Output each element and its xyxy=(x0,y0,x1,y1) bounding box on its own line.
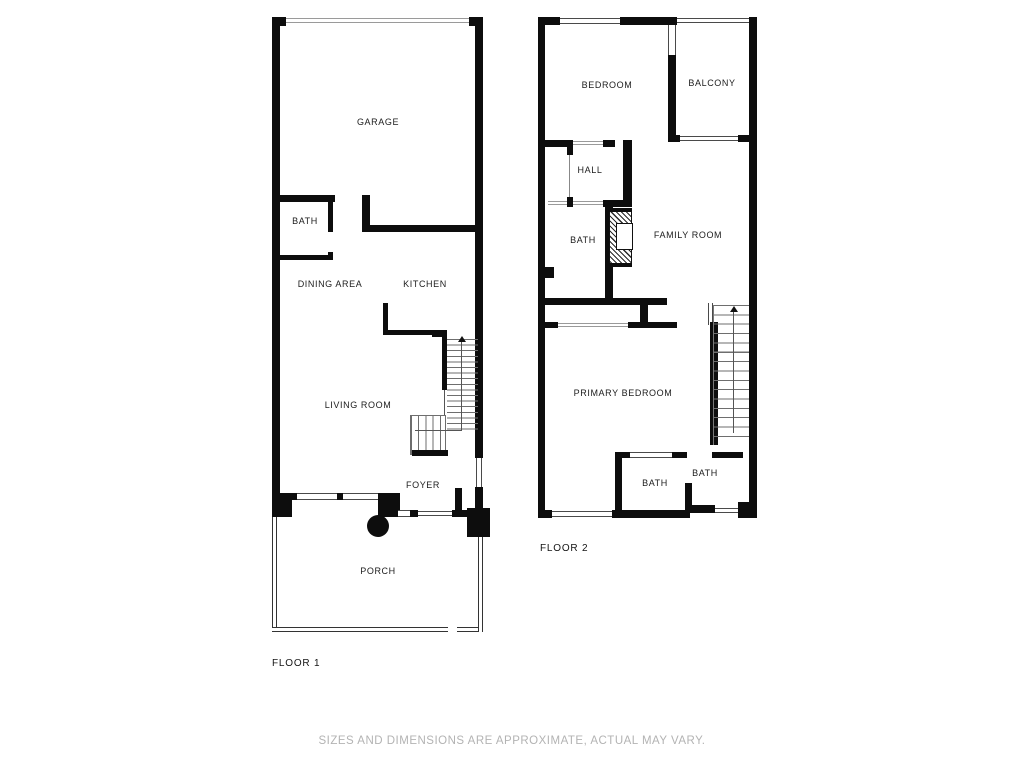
wall xyxy=(738,135,749,142)
wall xyxy=(672,452,687,458)
wall xyxy=(623,140,632,207)
wall xyxy=(668,135,680,142)
room-label-balcony: BALCONY xyxy=(688,78,735,88)
wall xyxy=(538,17,545,518)
wall xyxy=(620,17,677,25)
room-label-bedroom: BEDROOM xyxy=(582,80,633,90)
wall xyxy=(609,263,632,267)
door-opening xyxy=(568,141,603,145)
wall xyxy=(538,510,552,518)
closet-door-line xyxy=(569,155,570,197)
wall xyxy=(612,510,690,518)
closet-front xyxy=(548,201,567,205)
sliding-door xyxy=(680,136,738,141)
wall xyxy=(538,17,560,25)
room-label-hall: HALL xyxy=(578,165,603,175)
wall xyxy=(609,208,632,212)
window xyxy=(715,508,738,513)
wall xyxy=(545,140,568,147)
stair-up-arrow-icon xyxy=(730,306,738,312)
wall xyxy=(738,502,757,518)
wall xyxy=(712,452,743,458)
door-opening xyxy=(630,452,672,458)
room-label-bath-right: BATH xyxy=(692,468,718,478)
room-label-bath: BATH xyxy=(570,235,596,245)
window xyxy=(560,18,620,24)
window xyxy=(668,25,676,55)
wall xyxy=(545,267,554,278)
room-label-primary-bedroom: PRIMARY BEDROOM xyxy=(574,388,673,398)
room-label-family-room: FAMILY ROOM xyxy=(654,230,722,240)
floor2-plan: BEDROOM BALCONY HALL BATH FAMILY ROOM PR… xyxy=(0,0,1024,768)
stair-walkline xyxy=(733,311,734,433)
wall xyxy=(668,55,676,138)
staircase-floor2 xyxy=(713,305,749,445)
wall xyxy=(543,298,667,305)
room-label-bath-left: BATH xyxy=(642,478,668,488)
window xyxy=(552,511,612,517)
door-opening xyxy=(573,201,603,205)
balcony-railing xyxy=(677,18,749,23)
firebox xyxy=(616,223,633,250)
wall xyxy=(749,17,757,518)
disclaimer-text: SIZES AND DIMENSIONS ARE APPROXIMATE, AC… xyxy=(0,735,1024,747)
wall xyxy=(543,322,558,328)
wall xyxy=(628,322,677,328)
wall xyxy=(567,140,573,155)
floor2-title: FLOOR 2 xyxy=(540,543,588,554)
wall xyxy=(603,140,615,147)
wall xyxy=(690,505,715,513)
wall xyxy=(615,452,622,512)
door-opening xyxy=(558,323,628,327)
